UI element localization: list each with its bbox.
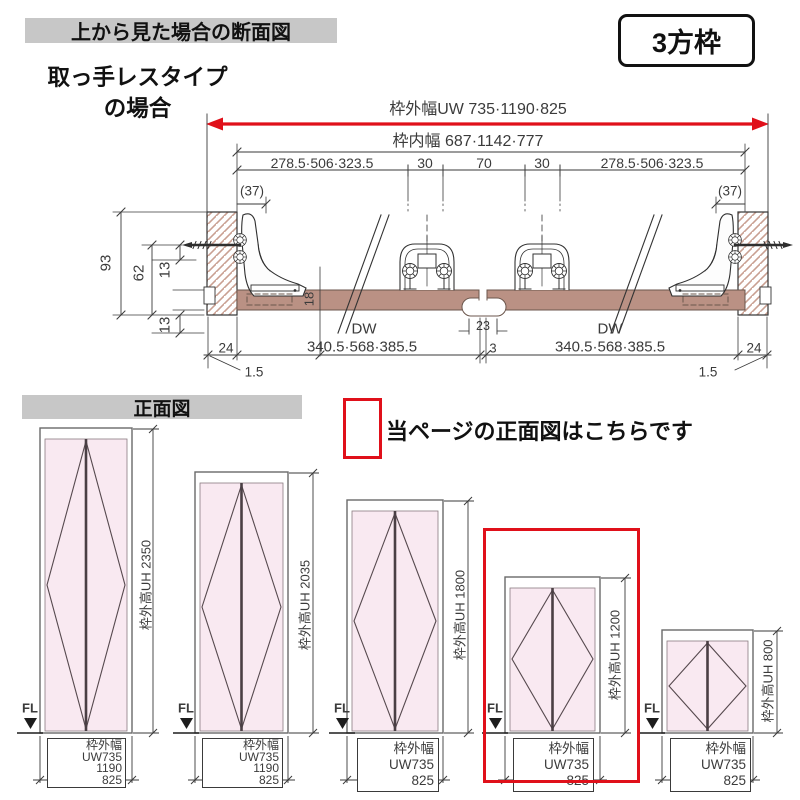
current-page-highlight-box bbox=[483, 528, 640, 783]
handle-less-subtitle: 取っ手レスタイプ の場合 bbox=[30, 62, 245, 124]
dim-23: 23 bbox=[476, 320, 490, 333]
dim-1-5-left: 1.5 bbox=[245, 365, 264, 379]
door-3-height-label: 枠外高UH 1800 bbox=[454, 570, 467, 660]
dim-seg-left: 278.5·506·323.5 bbox=[271, 156, 374, 170]
width-line: 枠外幅UW735 bbox=[675, 741, 746, 773]
front-view-title-bar: 正面図 bbox=[22, 395, 302, 419]
dim-inner-width: 枠内幅 687·1142·777 bbox=[393, 134, 544, 150]
width-line: 825 bbox=[675, 773, 746, 789]
door-1-fl-label: FL bbox=[22, 702, 38, 715]
door-2-fl-label: FL bbox=[178, 702, 194, 715]
door-3-width-box: 枠外幅UW735 825 bbox=[357, 738, 439, 792]
dim-18: 18 bbox=[303, 292, 316, 306]
dim-seg-70: 70 bbox=[476, 156, 492, 170]
front-view-drawings bbox=[17, 425, 783, 784]
dw-label-right: DW bbox=[598, 322, 623, 337]
dim-3: 3 bbox=[489, 342, 496, 355]
dim-seg-right: 278.5·506·323.5 bbox=[601, 156, 704, 170]
dim-seg-30b: 30 bbox=[534, 156, 550, 170]
dim-13-top: 13 bbox=[158, 262, 173, 279]
section-title: 上から見た場合の断面図 bbox=[71, 16, 291, 45]
right-roller bbox=[515, 236, 569, 290]
front-view-title: 正面図 bbox=[133, 394, 190, 421]
subtitle-line-2: の場合 bbox=[30, 93, 245, 124]
door-3-fl-label: FL bbox=[334, 702, 350, 715]
dw-value-right: 340.5·568·385.5 bbox=[555, 340, 665, 355]
dim-1-5-right: 1.5 bbox=[699, 365, 718, 379]
door-2-height-label: 枠外高UH 2035 bbox=[299, 560, 312, 650]
catalog-page: { "header": { "section_title": "上から見た場合の… bbox=[0, 0, 800, 800]
left-roller bbox=[400, 236, 454, 290]
cross-section-drawing bbox=[113, 114, 793, 370]
front-view-note: 当ページの正面図はこちらです bbox=[386, 414, 693, 446]
width-line: 825 bbox=[50, 775, 122, 787]
outer-width-arrow bbox=[206, 118, 769, 131]
dw-label-left: DW bbox=[352, 322, 377, 337]
door-5-fl-label: FL bbox=[644, 702, 660, 715]
dim-62: 62 bbox=[132, 265, 147, 282]
frame-type-label: 3方枠 bbox=[652, 21, 721, 60]
note-marker-box bbox=[343, 398, 382, 459]
dim-outer-width: 枠外幅UW 735·1190·825 bbox=[389, 102, 567, 118]
door-1-width-box: 枠外幅UW735 1190 825 bbox=[47, 738, 126, 788]
door-2-width-box: 枠外幅UW735 1190 825 bbox=[202, 738, 283, 788]
door-1-height-label: 枠外高UH 2350 bbox=[140, 540, 153, 630]
door-5-height-label: 枠外高UH 800 bbox=[762, 639, 775, 722]
extension-guides bbox=[408, 174, 560, 214]
section-title-bar: 上から見た場合の断面図 bbox=[25, 18, 337, 43]
dw-value-left: 340.5·568·385.5 bbox=[307, 340, 417, 355]
dim-93: 93 bbox=[99, 255, 114, 272]
subtitle-line-1: 取っ手レスタイプ bbox=[30, 62, 245, 93]
dim-paren-right: (37) bbox=[718, 184, 742, 198]
dim-13-bottom: 13 bbox=[158, 317, 173, 334]
width-line: 枠外幅UW735 bbox=[362, 741, 434, 773]
dim-seg-30a: 30 bbox=[417, 156, 433, 170]
dim-paren-left: (37) bbox=[240, 184, 264, 198]
width-line: 枠外幅UW735 bbox=[205, 740, 279, 763]
dim-24-left: 24 bbox=[218, 341, 233, 355]
width-line: 枠外幅UW735 bbox=[50, 740, 122, 763]
door-5-width-box: 枠外幅UW735 825 bbox=[670, 738, 751, 792]
frame-type-badge: 3方枠 bbox=[618, 14, 755, 67]
dim-24-right: 24 bbox=[746, 341, 761, 355]
astragal-profile bbox=[462, 298, 506, 316]
width-line: 825 bbox=[362, 773, 434, 789]
width-line: 825 bbox=[205, 775, 279, 787]
